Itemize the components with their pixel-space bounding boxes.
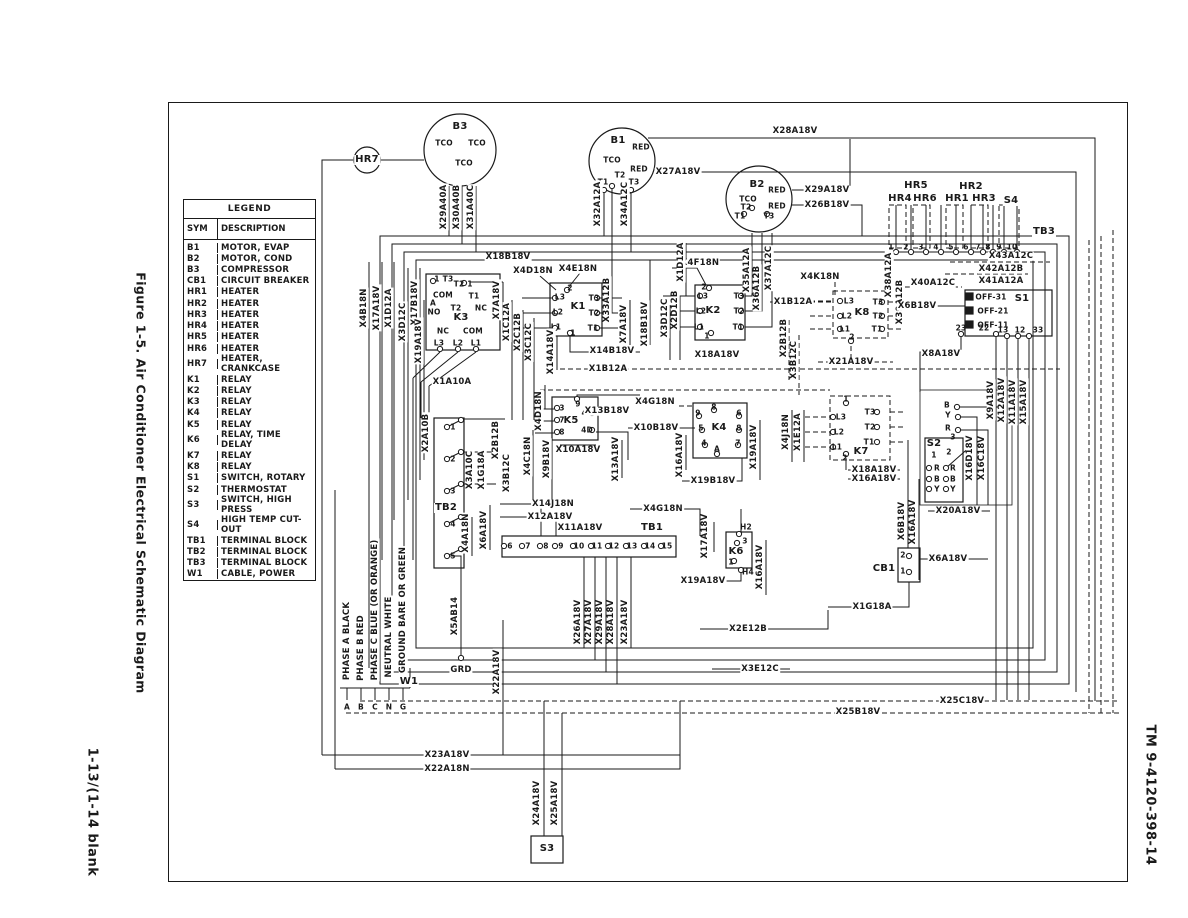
wire-label: T1	[735, 212, 746, 220]
wire-label: X4C18N	[524, 436, 533, 477]
legend-sym: K2	[184, 386, 218, 396]
wire-label: X41A12A	[978, 277, 1025, 286]
wire-label: X13A18V	[612, 436, 621, 483]
wire-label: X6B18V	[897, 302, 938, 311]
wire-label: 5	[450, 552, 455, 560]
wire-label: X10B18V	[633, 424, 680, 433]
legend-sym: K4	[184, 408, 218, 418]
wire-label: X16A18V	[756, 544, 765, 591]
legend-desc: CABLE, POWER	[218, 569, 315, 579]
wire-label: K3	[452, 313, 469, 323]
wire-label: X10A18V	[555, 446, 602, 455]
legend-sym: B1	[184, 243, 218, 253]
wire-label: HR7	[354, 155, 380, 165]
wire-label: K6	[727, 547, 744, 557]
wire-label: 1	[450, 423, 455, 431]
wire-label: 8	[985, 243, 990, 251]
legend-row: S2THERMOSTAT	[184, 484, 315, 495]
legend-sym: S3	[184, 500, 218, 510]
legend-row: K4RELAY	[184, 408, 315, 419]
wire-label: X22A18N	[423, 765, 470, 774]
wire-label: X23A18V	[424, 751, 471, 760]
legend-sym: HR4	[184, 321, 218, 331]
legend-desc: HEATER	[218, 344, 315, 354]
wire-label: HR2	[958, 182, 984, 192]
legend-col-desc: DESCRIPTION	[218, 219, 315, 239]
wire-label: 2	[946, 448, 951, 456]
legend-desc: RELAY, TIME DELAY	[218, 430, 315, 450]
wire-label: 4	[933, 243, 938, 251]
wire-label: X4F18N	[680, 259, 720, 268]
page-number: 1-13/(1-14 blank	[85, 748, 100, 877]
wire-label: CB1	[872, 564, 897, 574]
legend-row: B2MOTOR, COND	[184, 253, 315, 264]
wire-label: 2	[567, 284, 572, 292]
wire-label: 5	[948, 243, 953, 251]
wire-label: T1	[733, 323, 744, 331]
wire-label: K7	[852, 447, 869, 457]
wire-label: X3D12C	[661, 298, 670, 339]
legend-row: K6RELAY, TIME DELAY	[184, 430, 315, 450]
wire-label: L2	[834, 428, 844, 436]
wire-label: 12	[1015, 326, 1026, 334]
legend-row: S3SWITCH, HIGH PRESS	[184, 495, 315, 515]
wire-label: X2E12B	[728, 625, 768, 634]
wire-label: X2A10B	[422, 413, 431, 454]
wire-label: X18B18V	[485, 253, 532, 262]
wire-label: 1	[843, 395, 848, 403]
wire-label: T2	[589, 309, 600, 317]
legend-sym: B2	[184, 254, 218, 264]
wire-label: X5AB14	[451, 596, 460, 637]
legend-row: HR5HEATER	[184, 332, 315, 343]
wire-label: L1	[694, 323, 704, 331]
wire-label: X12A18V	[998, 377, 1007, 424]
legend-sym: K1	[184, 375, 218, 385]
wire-label: X40A12C	[910, 279, 956, 288]
legend-table: LEGEND SYM DESCRIPTION B1MOTOR, EVAPB2MO…	[183, 199, 316, 581]
wire-label: X4D18N	[535, 390, 544, 432]
legend-sym: HR6	[184, 344, 218, 354]
wire-label: T2	[865, 423, 876, 431]
wire-label: X36A12B	[753, 265, 762, 312]
wire-label: X3E12C	[740, 665, 780, 674]
wire-label: X1B12A	[773, 298, 814, 307]
legend-row: HR1HEATER	[184, 287, 315, 298]
wire-label: 33	[1033, 326, 1044, 334]
wire-label: 1	[704, 332, 709, 340]
wire-label: COM	[463, 327, 483, 335]
wire-label: S3	[539, 844, 556, 854]
wire-label: T3	[734, 292, 745, 300]
wire-label: X18B18V	[641, 301, 650, 348]
wire-label: 15	[662, 542, 673, 550]
wire-label: X28A18V	[607, 599, 616, 646]
wire-label: B	[358, 703, 364, 711]
wire-label: 8	[711, 403, 716, 411]
legend-desc: MOTOR, COND	[218, 254, 315, 264]
wire-label: X25C18V	[939, 697, 985, 706]
wire-label: 2	[900, 551, 905, 559]
legend-row: CB1CIRCUIT BREAKER	[184, 276, 315, 287]
wire-label: X33A12B	[603, 277, 612, 324]
legend-row: K1RELAY	[184, 374, 315, 385]
wire-label: A	[714, 445, 720, 453]
wire-label: X28A18V	[772, 127, 819, 136]
legend-row: HR3HEATER	[184, 309, 315, 320]
wire-label: K8	[853, 308, 870, 318]
wire-label: RED	[632, 143, 650, 151]
wire-label: 1	[570, 329, 575, 337]
wire-label: T1	[469, 292, 480, 300]
wire-label: 9	[695, 409, 700, 417]
wire-label: B1	[610, 136, 627, 146]
wire-label: X16D18V	[966, 434, 975, 481]
wire-label: H4	[742, 568, 754, 576]
legend-row: S4HIGH TEMP CUT-OUT	[184, 515, 315, 535]
wire-label: X20A18V	[935, 507, 982, 516]
wire-label: T3	[865, 408, 876, 416]
wire-label: L3	[844, 297, 854, 305]
wire-label: X25B18V	[835, 708, 882, 717]
legend-sym: TB1	[184, 536, 218, 546]
wire-label: L1	[832, 443, 842, 451]
wire-label: X6B18V	[898, 501, 907, 542]
wire-label: X4A18N	[462, 512, 471, 553]
wire-label: X2C12B	[514, 312, 523, 352]
wire-label: 22	[979, 324, 990, 332]
legend-row: K7RELAY	[184, 450, 315, 461]
legend-row: HR4HEATER	[184, 321, 315, 332]
wire-label: 2	[842, 454, 847, 462]
wire-label: X25A18V	[551, 780, 560, 827]
wire-label: X22A18V	[493, 649, 502, 696]
wire-label: GROUND BARE OR GREEN	[399, 546, 408, 674]
wire-label: X7A18V	[493, 280, 502, 321]
legend-sym: K5	[184, 420, 218, 430]
wire-label: L2	[553, 308, 563, 316]
legend-row: B1MOTOR, EVAP	[184, 242, 315, 253]
wire-label: L3	[698, 292, 708, 300]
schematic-artwork	[0, 0, 1188, 918]
wire-label: RED	[768, 202, 786, 210]
legend-row: HR6HEATER	[184, 343, 315, 354]
wire-label: K4	[710, 423, 727, 433]
legend-desc: RELAY	[218, 375, 315, 385]
wire-label: PHASE C BLUE (OR ORANGE)	[371, 539, 380, 682]
legend-desc: HEATER	[218, 332, 315, 342]
wire-label: X17A18V	[701, 513, 710, 560]
wire-label: COM	[433, 291, 453, 299]
wire-label: 13	[998, 326, 1009, 334]
wire-label: X6A18V	[480, 510, 489, 551]
wire-label: T2	[615, 171, 626, 179]
wire-label: B2	[749, 180, 766, 190]
wire-label: X16A18V	[676, 432, 685, 479]
wire-label: X17A18V	[373, 285, 382, 332]
legend-desc: HEATER, CRANKCASE	[218, 354, 315, 374]
wire-label: K5	[562, 416, 579, 426]
legend-sym: S4	[184, 520, 218, 530]
wire-label: 9	[558, 542, 563, 550]
wire-label: T3	[764, 212, 775, 220]
wire-label: 1	[900, 567, 905, 575]
wire-label: A	[344, 703, 350, 711]
legend-desc: RELAY	[218, 397, 315, 407]
wire-label: 1	[467, 280, 472, 288]
wire-label: R	[934, 464, 940, 472]
wire-label: X4K18N	[799, 273, 840, 282]
legend-row: HR2HEATER	[184, 298, 315, 309]
legend-col-sym: SYM	[184, 219, 218, 239]
legend-sym: K7	[184, 451, 218, 461]
wire-label: X1D12A	[385, 287, 394, 328]
wire-label: T3	[629, 178, 640, 186]
wire-label: T2	[454, 280, 465, 288]
wire-label: X26A18V	[574, 599, 583, 646]
wire-label: X4E18N	[558, 265, 598, 274]
wire-label: X4J18N	[782, 413, 791, 451]
wire-label: H2	[740, 523, 752, 531]
wire-label: X1B12A	[588, 365, 629, 374]
wire-label: 4	[701, 439, 706, 447]
wire-label: T1	[588, 324, 599, 332]
wire-label: X1D12A	[677, 241, 686, 282]
legend-desc: HEATER	[218, 310, 315, 320]
wire-label: X19A18V	[680, 577, 727, 586]
legend-desc: RELAY	[218, 462, 315, 472]
wire-label: 1	[728, 558, 733, 566]
wire-label: TB3	[1032, 227, 1056, 237]
legend-row: K5RELAY	[184, 419, 315, 430]
wire-label: B	[950, 475, 956, 483]
wire-label: X24A18V	[533, 780, 542, 827]
motor-circles	[354, 114, 792, 232]
wire-label: X14J18N	[531, 500, 575, 509]
wire-label: X11A18V	[1009, 379, 1018, 426]
legend-sym: HR1	[184, 287, 218, 297]
wire-label: 1	[434, 275, 439, 283]
wire-label: K1	[569, 302, 586, 312]
legend-sym: HR3	[184, 310, 218, 320]
legend-row: K3RELAY	[184, 397, 315, 408]
legend-desc: COMPRESSOR	[218, 265, 315, 275]
wire-label: 2	[903, 243, 908, 251]
legend-sym: S1	[184, 473, 218, 483]
wire-label: PHASE A BLACK	[343, 601, 352, 681]
legend-sym: S2	[184, 485, 218, 495]
legend-desc: TERMINAL BLOCK	[218, 558, 315, 568]
wire-label: X38A12A	[885, 252, 894, 299]
wire-label: X37A12C	[765, 245, 774, 291]
wire-label: X8A18V	[921, 350, 962, 359]
wire-label: 2	[450, 455, 455, 463]
legend-sym: W1	[184, 569, 218, 579]
wire-label: TCO	[455, 159, 473, 167]
wire-label: X32A12A	[594, 181, 603, 228]
wire-label: X19A18V	[415, 318, 424, 365]
legend-row: B3COMPRESSOR	[184, 264, 315, 275]
wire-label: T2	[734, 307, 745, 315]
wire-label: 8	[543, 542, 548, 550]
wire-label: L3	[836, 413, 846, 421]
wire-label: TCO	[435, 139, 453, 147]
wire-label: 7	[559, 416, 564, 424]
wire-label: S2	[926, 439, 943, 449]
wire-label: 7	[975, 243, 980, 251]
wire-label: X27A18V	[585, 599, 594, 646]
wire-label: X4D18N	[512, 267, 554, 276]
wire-label: PHASE B RED	[357, 614, 366, 682]
legend-row: HR7HEATER, CRANKCASE	[184, 354, 315, 374]
wire-label: T2	[873, 312, 884, 320]
wire-label: X3B12C	[790, 340, 799, 380]
wire-label: L2	[842, 312, 852, 320]
legend-sym: TB3	[184, 558, 218, 568]
wire-label: Y	[950, 485, 956, 493]
legend-row: TB2TERMINAL BLOCK	[184, 546, 315, 557]
wire-label: TB1	[640, 523, 664, 533]
wire-label: 13	[627, 542, 638, 550]
legend-sym: HR7	[184, 359, 218, 369]
wire-label: 4	[450, 520, 455, 528]
wire-label: 4D	[581, 426, 593, 434]
legend-row: K2RELAY	[184, 385, 315, 396]
wire-label: X7A18V	[620, 304, 629, 345]
wire-label: Y	[934, 485, 940, 493]
wire-label: R	[945, 424, 951, 432]
wire-label: 5	[698, 424, 703, 432]
wire-label: X3B12C	[503, 453, 512, 493]
wire-label: W1	[399, 677, 419, 687]
wire-label: G	[400, 703, 406, 711]
legend-desc: RELAY	[218, 451, 315, 461]
wire-label: X4B18N	[360, 287, 369, 328]
wire-label: X2D12B	[671, 289, 680, 330]
wire-label: 9	[575, 400, 580, 408]
wire-label: X13B18V	[584, 407, 631, 416]
legend-sym: K6	[184, 435, 218, 445]
wire-label: R	[950, 464, 956, 472]
legend-sym: HR2	[184, 299, 218, 309]
wire-label: X42A12B	[978, 265, 1025, 274]
legend-desc: MOTOR, EVAP	[218, 243, 315, 253]
wire-label: X31A40C	[467, 184, 476, 230]
wire-label: X30A40B	[453, 184, 462, 231]
legend-sym: K8	[184, 462, 218, 472]
wire-label: 3	[559, 404, 564, 412]
wire-label: HR6	[912, 194, 938, 204]
wire-label: X23A18V	[621, 599, 630, 646]
wire-label: T2	[451, 304, 462, 312]
legend-sym: CB1	[184, 276, 218, 286]
wire-label: X9B18V	[543, 439, 552, 480]
wire-label: NC	[437, 327, 449, 335]
wire-label: X3C12C	[525, 322, 534, 362]
wire-label: X9A18V	[987, 380, 996, 421]
wire-label: 1	[931, 451, 936, 459]
wire-label: 8	[559, 428, 564, 436]
wire-label: L1	[471, 339, 481, 347]
wire-label: L3	[434, 339, 444, 347]
legend-desc: TERMINAL BLOCK	[218, 547, 315, 557]
legend-row: K8RELAY	[184, 462, 315, 473]
wire-label: NEUTRAL WHITE	[385, 596, 394, 679]
wire-label: X18A18V	[694, 351, 741, 360]
wire-label: X16C18V	[978, 435, 987, 481]
wire-label: X21A18V	[828, 358, 875, 367]
wire-label: 7	[525, 542, 530, 550]
legend-row: W1CABLE, POWER	[184, 569, 315, 580]
wire-label: T1	[872, 325, 883, 333]
wire-label: X29A18V	[596, 599, 605, 646]
wire-label: 7	[735, 439, 740, 447]
wire-label: X27A18V	[655, 168, 702, 177]
wire-label: X26B18V	[804, 201, 851, 210]
legend-desc: HEATER	[218, 321, 315, 331]
wire-label: HR3	[971, 194, 997, 204]
wire-label: 6	[736, 409, 741, 417]
wire-label: 12	[609, 542, 620, 550]
wire-label: T3	[443, 275, 454, 283]
legend-row: TB1TERMINAL BLOCK	[184, 535, 315, 546]
legend-desc: RELAY	[218, 408, 315, 418]
wire-label: T3	[589, 294, 600, 302]
legend-header: SYM DESCRIPTION	[184, 219, 315, 240]
wire-label: TB2	[434, 503, 458, 513]
legend-rows: B1MOTOR, EVAPB2MOTOR, CONDB3COMPRESSORCB…	[184, 240, 315, 580]
wire-label: X19A18V	[750, 424, 759, 471]
wire-label: X19B18V	[690, 477, 737, 486]
legend-desc: RELAY	[218, 386, 315, 396]
wire-label: GRD	[449, 666, 472, 675]
wire-label: X3D12C	[399, 302, 408, 343]
wire-label: 2	[849, 333, 854, 341]
wire-label: X1A10A	[432, 378, 473, 387]
legend-desc: HEATER	[218, 287, 315, 297]
wire-label: X11A18V	[557, 524, 604, 533]
wire-label: K2	[704, 306, 721, 316]
wire-label: X1E12A	[794, 412, 803, 452]
wire-label: L2	[696, 307, 706, 315]
wire-label: 1	[888, 243, 893, 251]
wire-label: B	[934, 475, 940, 483]
wire-label: T3	[873, 298, 884, 306]
legend-sym: TB2	[184, 547, 218, 557]
wire-label: TCO	[468, 139, 486, 147]
wire-label: 3	[742, 537, 747, 545]
wire-label: NC	[475, 304, 487, 312]
wire-label: N	[386, 703, 392, 711]
wire-label: X2B12B	[492, 420, 501, 460]
wire-label: X1G18A	[851, 603, 892, 612]
wire-label: S1	[1014, 294, 1031, 304]
wire-label: X1C12A	[503, 302, 512, 342]
wire-label: X4G18N	[642, 505, 684, 514]
legend-desc: CIRCUIT BREAKER	[218, 276, 315, 286]
manual-page: HR7B3TCOTCOTCOX29A40AX30A40BX31A40CB1RED…	[0, 0, 1188, 918]
wire-label: HR1	[944, 194, 970, 204]
wire-label: OFF-31	[975, 293, 1006, 301]
legend-desc: HIGH TEMP CUT-OUT	[218, 515, 315, 535]
wire-label: 6	[507, 542, 512, 550]
wire-label: S4	[1003, 196, 1020, 206]
wire-label: X35A12A	[743, 247, 752, 294]
legend-desc: TERMINAL BLOCK	[218, 536, 315, 546]
wire-label: B	[944, 401, 950, 409]
wire-label: 8	[736, 424, 741, 432]
wire-label: 9	[996, 243, 1001, 251]
